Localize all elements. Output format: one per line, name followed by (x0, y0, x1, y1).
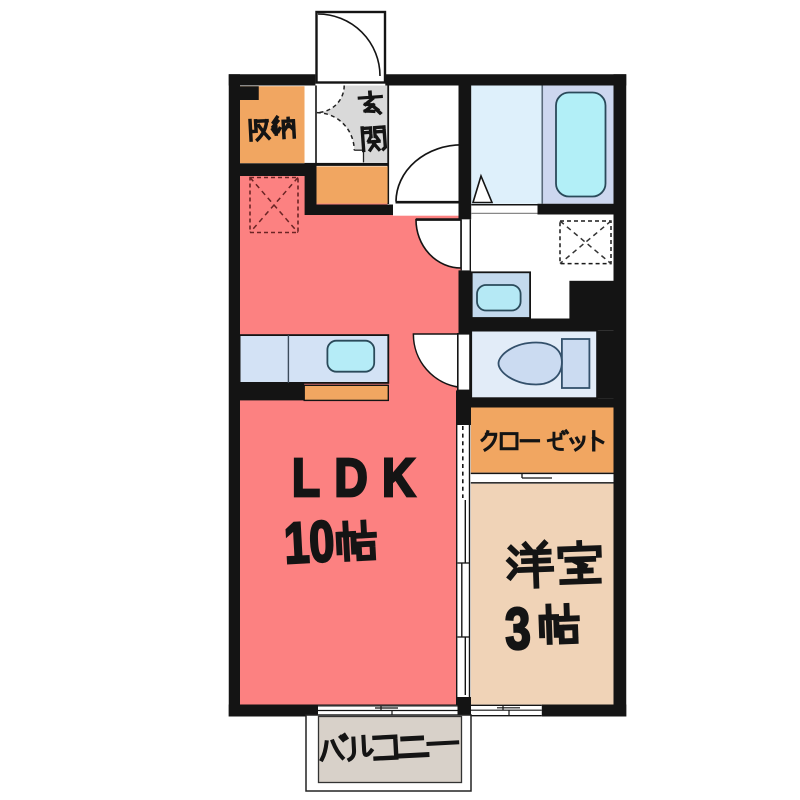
svg-text:LDK: LDK (292, 448, 430, 508)
svg-text:3: 3 (504, 596, 532, 663)
svg-text:10: 10 (282, 510, 336, 577)
